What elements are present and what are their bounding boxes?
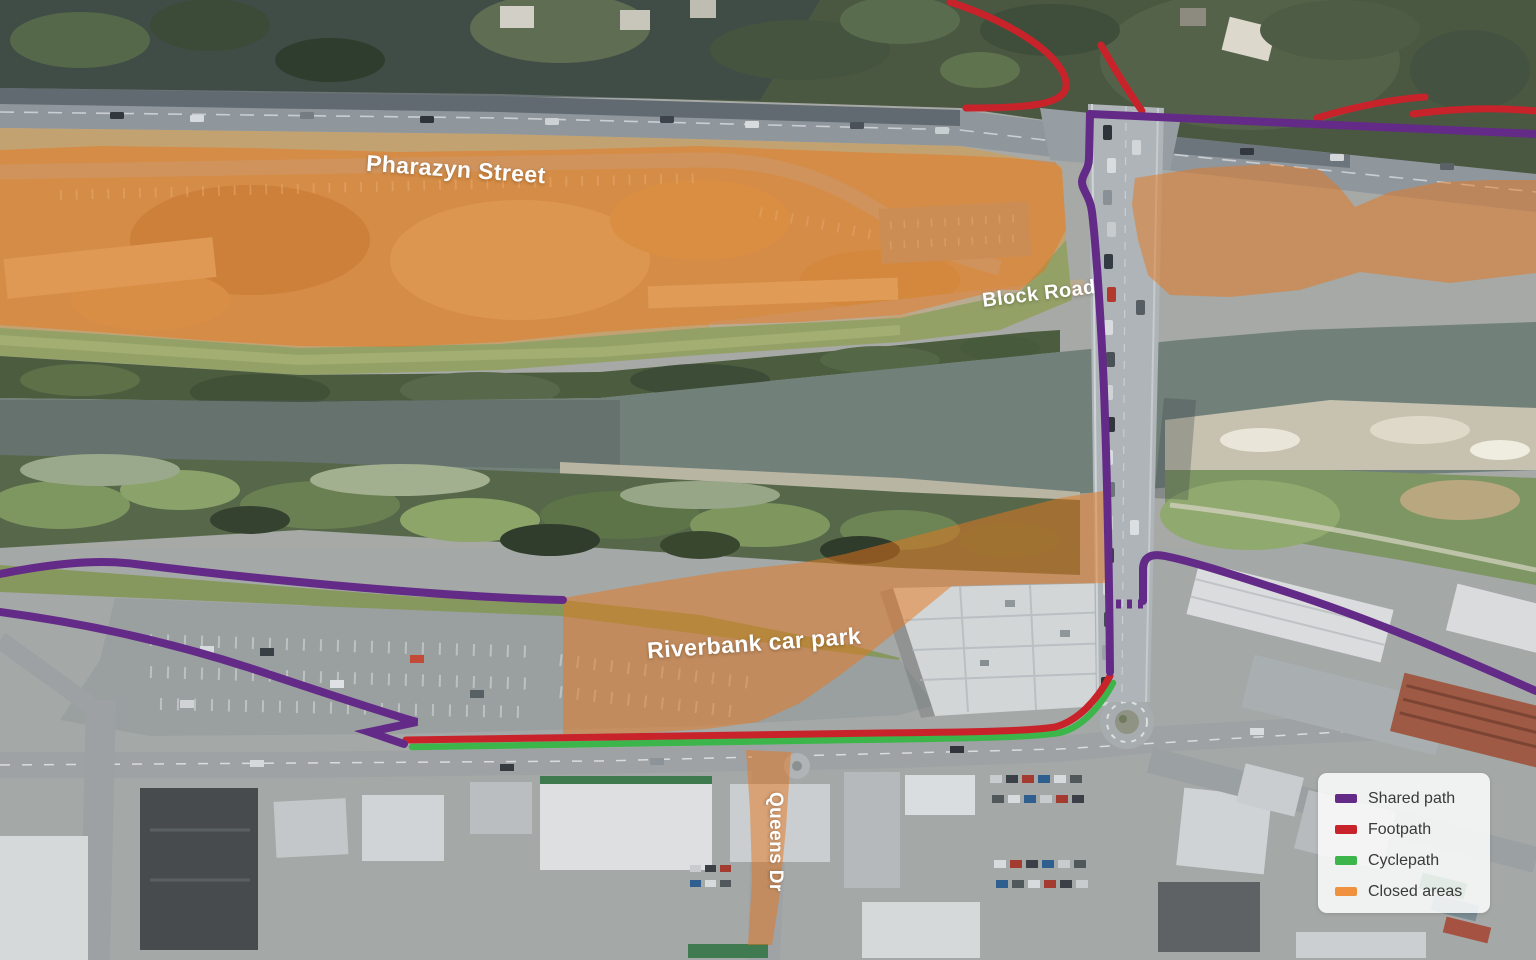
map-legend: Shared path Footpath Cyclepath Closed ar… bbox=[1318, 773, 1490, 913]
legend-item-shared-path: Shared path bbox=[1335, 785, 1490, 812]
cyclepath-swatch-icon bbox=[1335, 856, 1357, 865]
legend-label: Closed areas bbox=[1368, 884, 1462, 900]
footpath-swatch-icon bbox=[1335, 825, 1357, 834]
map-canvas: Pharazyn Street Block Road Riverbank car… bbox=[0, 0, 1536, 960]
shared-path-swatch-icon bbox=[1335, 794, 1357, 803]
legend-item-closed-areas: Closed areas bbox=[1335, 878, 1490, 905]
legend-label: Shared path bbox=[1368, 791, 1455, 807]
closed-areas-swatch-icon bbox=[1335, 887, 1357, 896]
closed-area-east bbox=[1132, 164, 1536, 297]
label-queens-dr: Queens Dr bbox=[764, 792, 786, 892]
legend-label: Cyclepath bbox=[1368, 853, 1439, 869]
legend-label: Footpath bbox=[1368, 822, 1431, 838]
legend-item-cyclepath: Cyclepath bbox=[1335, 847, 1490, 874]
legend-item-footpath: Footpath bbox=[1335, 816, 1490, 843]
